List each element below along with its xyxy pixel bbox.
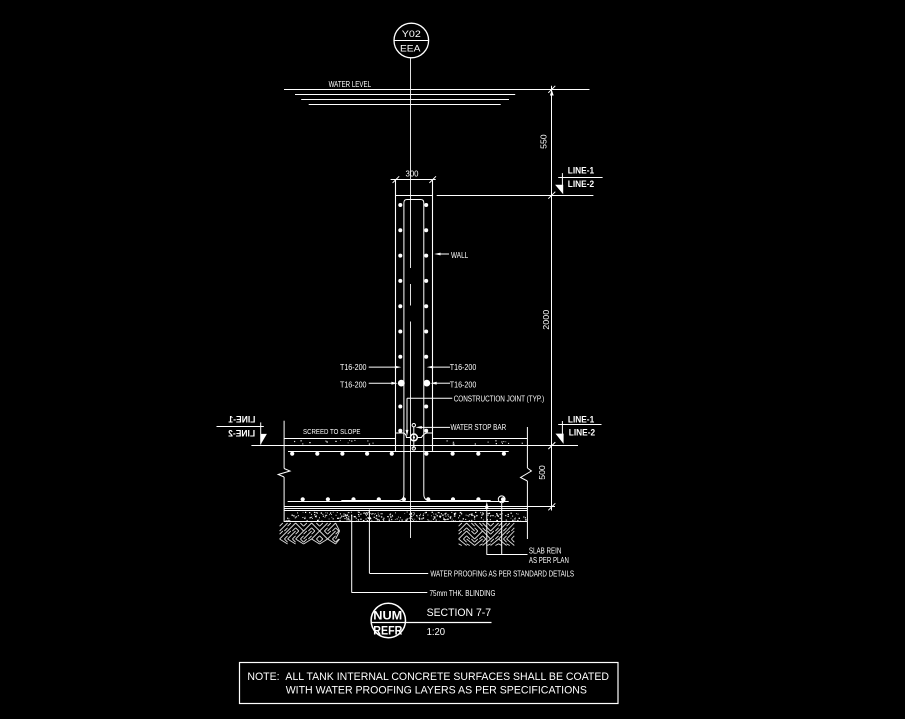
svg-text:REFR: REFR (373, 625, 403, 637)
svg-text:1:20: 1:20 (427, 627, 446, 638)
svg-text:WATER STOP BAR: WATER STOP BAR (451, 423, 507, 432)
svg-text:T16-200: T16-200 (450, 363, 477, 372)
svg-text:500: 500 (538, 465, 547, 480)
svg-text:SECTION 7-7: SECTION 7-7 (427, 607, 492, 619)
svg-text:Y02: Y02 (402, 29, 421, 40)
svg-text:2000: 2000 (542, 309, 551, 330)
svg-text:EEA: EEA (400, 43, 421, 54)
svg-text:AS PER PLAN: AS PER PLAN (529, 556, 569, 565)
svg-text:SCREED TO SLOPE: SCREED TO SLOPE (303, 427, 361, 436)
svg-text:WATER PROOFING AS PER STANDARD: WATER PROOFING AS PER STANDARD DETAILS (430, 569, 574, 578)
svg-text:SLAB REIN: SLAB REIN (529, 546, 562, 555)
svg-text:LINE-1: LINE-1 (228, 414, 255, 424)
svg-text:WATER LEVEL: WATER LEVEL (329, 80, 372, 89)
svg-text:WITH WATER PROOFING LAYERS AS: WITH WATER PROOFING LAYERS AS PER SPECIF… (286, 685, 587, 697)
svg-text:T16-200: T16-200 (450, 381, 477, 390)
svg-text:NOTE: ALL TANK INTERNAL CONCR: NOTE: ALL TANK INTERNAL CONCRETE SURFACE… (247, 671, 609, 683)
svg-text:T16-200: T16-200 (340, 363, 367, 372)
svg-text:CONSTRUCTION JOINT (TYP.): CONSTRUCTION JOINT (TYP.) (454, 394, 545, 403)
svg-text:300: 300 (406, 170, 420, 179)
svg-text:LINE-2: LINE-2 (228, 428, 255, 438)
svg-text:LINE-1: LINE-1 (568, 415, 594, 425)
svg-text:550: 550 (539, 134, 548, 149)
svg-text:LINE-1: LINE-1 (568, 165, 594, 175)
svg-text:NUM: NUM (373, 610, 402, 622)
svg-text:75mm THK. BLINDING: 75mm THK. BLINDING (430, 589, 496, 598)
svg-text:T16-200: T16-200 (340, 381, 367, 390)
svg-text:LINE-2: LINE-2 (568, 179, 594, 189)
svg-text:LINE-2: LINE-2 (569, 428, 595, 438)
svg-text:WALL: WALL (451, 251, 469, 260)
